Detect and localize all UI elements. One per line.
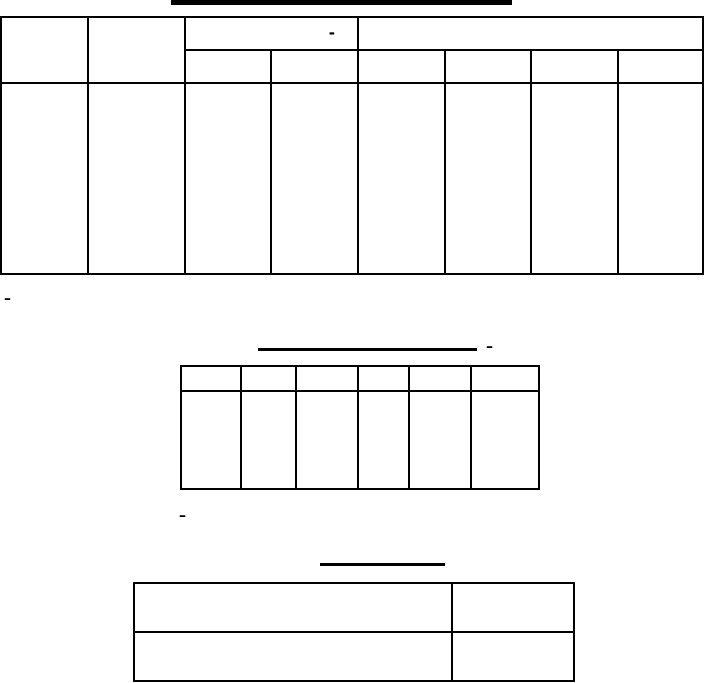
group-header-dash: -	[329, 24, 335, 42]
table2-body-cell	[241, 391, 296, 489]
table1-body-cell	[271, 83, 358, 274]
table2-header-cell	[409, 366, 471, 391]
table1-group-header-left: -	[185, 17, 358, 50]
table2-body-cell	[181, 391, 241, 489]
table3-cell	[134, 583, 452, 632]
table2-body-cell	[409, 391, 471, 489]
table1-body-cell	[185, 83, 271, 274]
table2-title-underline	[258, 348, 477, 351]
table1-body-cell	[358, 83, 445, 274]
table2-header-cell	[181, 366, 241, 391]
table1-body-cell	[1, 83, 88, 274]
table1-subheader-cell	[531, 50, 618, 83]
table1-subheader-cell	[618, 50, 703, 83]
table2	[180, 365, 540, 490]
table2-header-cell	[241, 366, 296, 391]
table3	[133, 582, 575, 682]
dash-note-below-table2: –	[179, 508, 186, 524]
table2-body-cell	[471, 391, 539, 489]
table1: -	[0, 16, 704, 275]
table3-cell	[452, 632, 574, 681]
table1-header-cell-col2	[88, 17, 185, 83]
table1-body-cell	[88, 83, 185, 274]
table3-title-underline	[320, 563, 445, 566]
dash-after-table2-title: –	[486, 339, 493, 355]
table1-subheader-cell	[185, 50, 271, 83]
table1-subheader-cell	[445, 50, 531, 83]
table1-body-cell	[445, 83, 531, 274]
table1-title-underline	[171, 0, 512, 5]
table2-header-cell	[471, 366, 539, 391]
table1-body-cell	[618, 83, 703, 274]
table2-body-cell	[358, 391, 409, 489]
table1-header-cell-col1	[1, 17, 88, 83]
dash-note-below-table1: –	[4, 291, 11, 307]
table1-group-header-right	[358, 17, 703, 50]
table2-header-cell	[358, 366, 409, 391]
document-page: - – –	[0, 0, 704, 683]
table1-subheader-cell	[358, 50, 445, 83]
table2-header-cell	[296, 366, 358, 391]
table3-cell	[134, 632, 452, 681]
table1-subheader-cell	[271, 50, 358, 83]
table3-cell	[452, 583, 574, 632]
table1-body-cell	[531, 83, 618, 274]
table2-body-cell	[296, 391, 358, 489]
